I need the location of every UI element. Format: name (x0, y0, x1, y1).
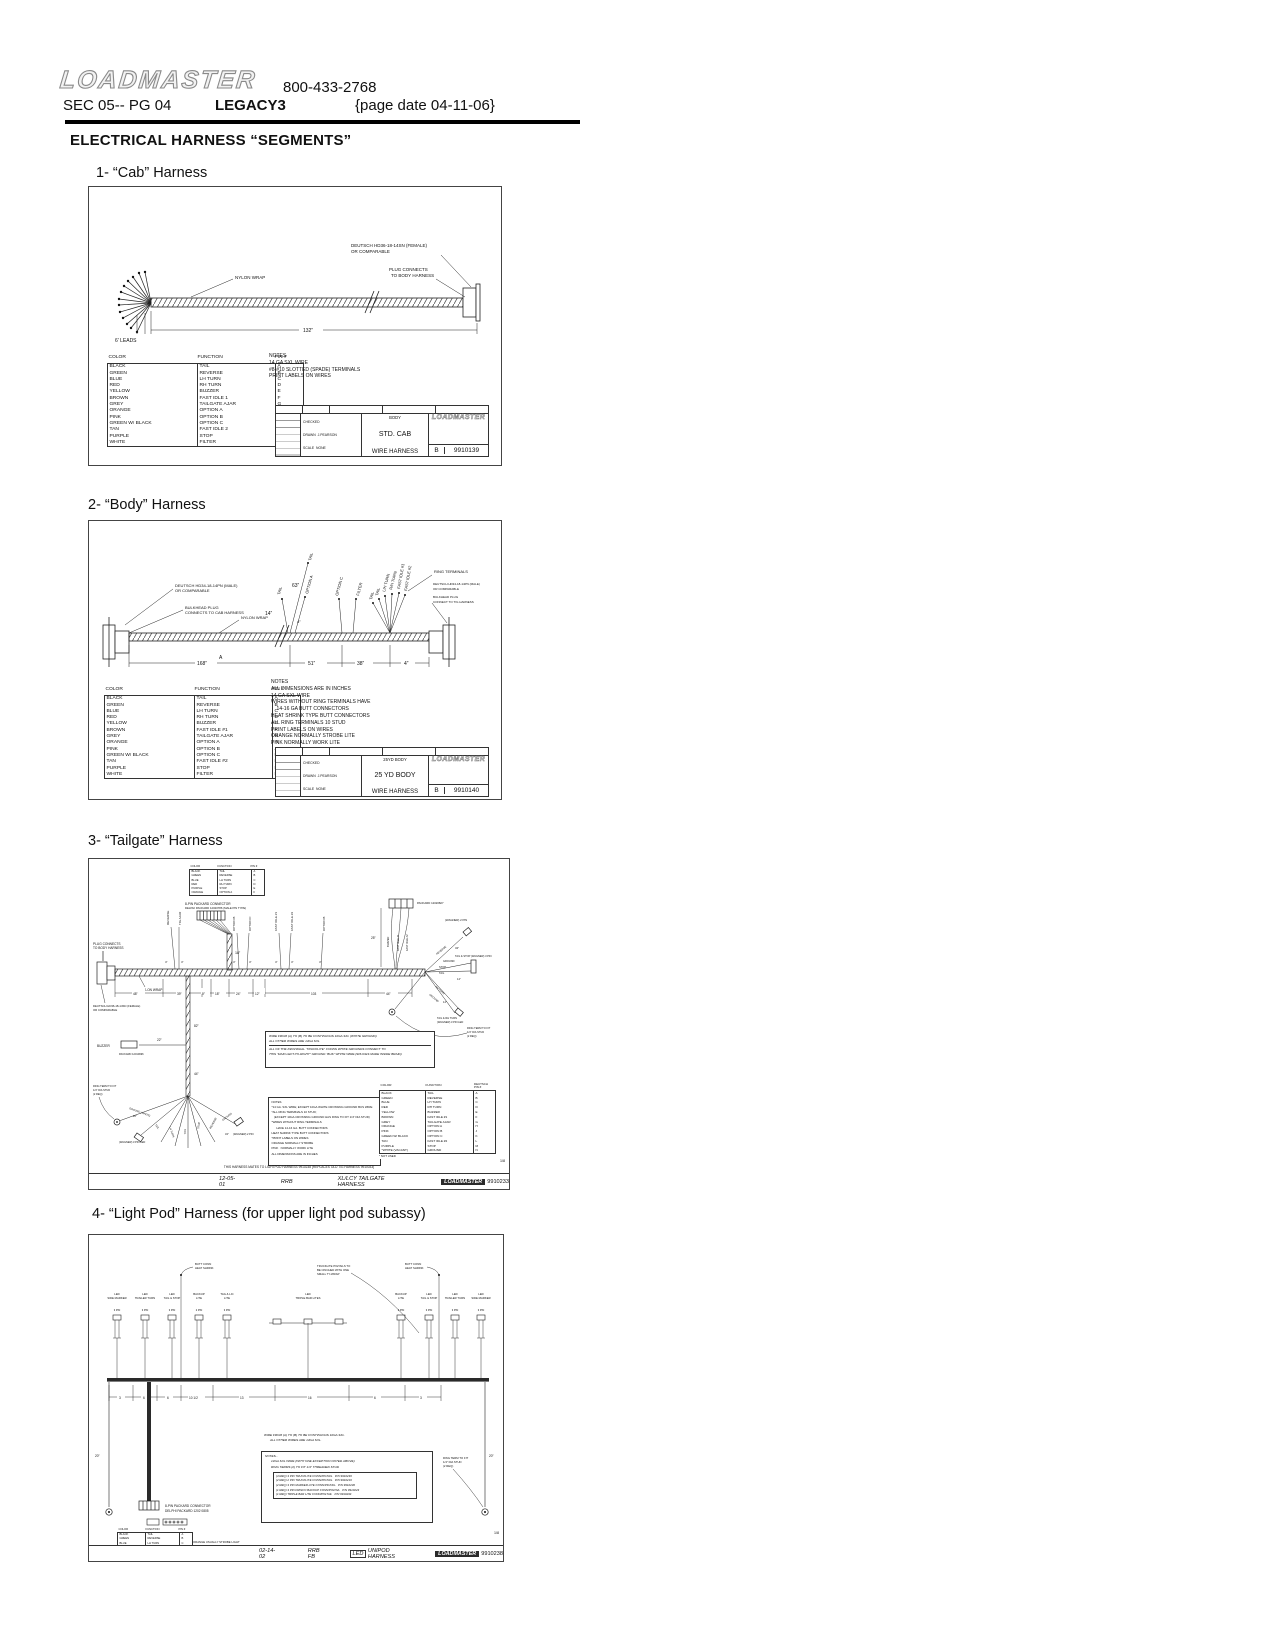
dim-9: 9” (202, 992, 205, 996)
drawing-title: STD. CAB (362, 431, 428, 438)
bulkhead-right-label2: CONNECT TO T/G HARNESS (433, 600, 474, 604)
dim-4: 4” (249, 960, 252, 964)
note-line: 14 GA SXL WIRE (269, 360, 360, 367)
dim: 3 (119, 1396, 121, 1400)
drawing-title: 25 YD BODY (362, 772, 428, 779)
dimension-chain (109, 1385, 441, 1401)
title-block-titles: BODY STD. CAB WIRE HARNESS (362, 414, 429, 456)
butt-conn-label2: HEAT SHRINK (195, 1266, 214, 1270)
dim-168: 168” (197, 661, 207, 667)
lightpod-notes: NOTES... 14GA SXL WIRE (WITH ONE EXCEPTI… (261, 1451, 433, 1523)
cab-lead-fan (119, 272, 151, 332)
note-line: PRINT LABELS ON WIRES (271, 727, 370, 734)
branch-label: FAST IDLE #2 (290, 912, 294, 931)
leader (99, 1097, 114, 1119)
dim-34: 34” (455, 946, 459, 950)
dim: 16 (308, 1396, 312, 1400)
body-notes: NOTES ALL DIMENSIONS ARE IN INCHES14 GA … (271, 679, 370, 747)
dim: 6 (167, 1396, 169, 1400)
cab-harness-drawing: NYLON WRAP DEUTSCH HD36-18-14SN (FEMALE)… (88, 186, 502, 466)
dim-34b: 34” (225, 1132, 229, 1136)
tag-3pin-led: (WAGNER) 3 PIN LED (437, 1020, 463, 1024)
dim-63: 63” (292, 583, 300, 589)
leader (351, 1273, 419, 1333)
drawing-number: 9910139 (445, 447, 488, 454)
brand-logo: LOADMASTER (429, 414, 488, 445)
tailgate-mini-table: COLOR FUNCTION PIN # BLACKTAILA GREENREV… (189, 865, 265, 896)
title-block-id: LOADMASTER B 9910140 (429, 756, 488, 796)
dim-20: 20” (133, 1114, 137, 1118)
fan2-label: TAIL (154, 1123, 161, 1130)
branch-label: OPTION B (322, 917, 326, 931)
mates-note: THIS HARNESS MATES TO LIGHTPOD HARNESS 9… (89, 1165, 509, 1169)
dim-132-label: 132” (303, 328, 313, 334)
lightpod-fixtures (113, 1315, 485, 1378)
leader (101, 985, 105, 1003)
title-block-signoff: CHECKED DRAWN J.PEARSON SCALE NONE (301, 756, 362, 796)
fixture-labels: LED SIDE MARKER 3 PIN LED TRAILER TURN 3… (107, 1292, 490, 1312)
bulkhead-right-label: BULKHEAD PLUG (433, 595, 459, 599)
parts-list-cells (276, 414, 301, 456)
side-dim-right: 20” (489, 1454, 494, 1458)
dim-25: 25” (371, 936, 376, 940)
fixture-tag: 3 PIN (114, 1308, 121, 1312)
strip-date: 02-14-02 (259, 1548, 278, 1560)
fixture-tag: 3 PIN (169, 1308, 176, 1312)
rbranch-label: FAST IDLE #2 (405, 934, 409, 951)
fan-label: REVERSE (435, 945, 447, 956)
side-dim-left: 20” (95, 1454, 100, 1458)
ring-term-note2: 1/4” DIA STUD (467, 1030, 484, 1034)
page-title: ELECTRICAL HARNESS “SEGMENTS” (70, 132, 351, 149)
mini-table-header: COLOR FUNCTION PIN # (117, 1528, 193, 1532)
not-used-footnote: * NOT USED (379, 1154, 496, 1159)
nylon-wrap-label: NYLON WRAP (241, 615, 268, 620)
plug-connects-label: PLUG CONNECTS (389, 267, 428, 272)
deutsch-right-label: DEUTSCH HD34-18-14PN (MALE) (433, 582, 480, 586)
dim-22: 22” (157, 1038, 162, 1042)
fan-label: TAIL (439, 971, 445, 975)
plug-connects-label2: TO BODY HARNESS (391, 273, 434, 278)
table-row: WHITEFILTERN (108, 440, 303, 446)
notes-list: NOTES*14 GA. SXL WIRE; EXCEPT 10GA WHITE… (272, 1100, 378, 1157)
tailgate-table-body: BLACKTAILA GREENREVERSEB BLUELH TURNC RE… (379, 1090, 496, 1154)
note-line: HEAT SHRINK TYPE BUTT CONNECTORS (271, 713, 370, 720)
dim-24: 24” (236, 992, 241, 996)
note-line: PRINT LABELS ON WIRES (269, 373, 360, 380)
gnote-line: THIS “MAIN LEFT-TO-RIGHT” GROUND “BUS” W… (269, 1052, 431, 1057)
dim: 6 (143, 1396, 145, 1400)
strip-author: RRB FB (308, 1548, 325, 1560)
fixture-label: TAIL & STOP (421, 1296, 438, 1300)
title-block-titles: 25YD BODY 25 YD BODY WIRE HARNESS (362, 756, 429, 796)
fixture-label: SIDE MARKER (107, 1296, 126, 1300)
fixture-label: LITE (224, 1296, 230, 1300)
note-line: #8-#10 SLOTTED (SPADE) TERMINALS (269, 367, 360, 374)
dim-103: 103 (311, 992, 317, 996)
strip-brand: LOADMASTER (441, 1179, 485, 1185)
note-line: ALL DIMENSIONS ARE IN INCHES (271, 686, 370, 693)
fixture-connectors (113, 1315, 485, 1320)
cab-heading: 1- “Cab” Harness (96, 165, 207, 181)
notes-list: ALL DIMENSIONS ARE IN INCHES14 GA SXL WI… (271, 686, 370, 747)
branch-label: FAST IDLE #1 (274, 912, 278, 931)
fixture-label: LITE (398, 1296, 404, 1300)
drawing-subtitle: WIRE HARNESS (362, 789, 428, 795)
note-line: PINK NORMALLY WORK LITE (271, 740, 370, 747)
strip-number: 9910238 (481, 1551, 503, 1557)
fixture-tag: 3 PIN (224, 1308, 231, 1312)
fixture-label: TRAILER TURN (445, 1296, 465, 1300)
packard-label: 8-PIN PACKARD CONNECTOR (165, 1504, 211, 1508)
phone-number: 800-433-2768 (283, 79, 376, 96)
buzzer-connector (121, 1041, 137, 1048)
rbranch-label: FAST IDLE #1 (396, 934, 400, 951)
riser-down (186, 976, 190, 1096)
revision-letter: B (429, 787, 445, 794)
strip-led-tag: LED (350, 1550, 366, 1558)
tailgate-harness-drawing: 8-PIN PACKARD CONNECTOR DELPHI PACKARD 1… (88, 858, 510, 1190)
dim-4b: 4” (404, 661, 409, 667)
title-block-signoff: CHECKED DRAWN J.PEARSON SCALE NONE (301, 414, 362, 456)
riser-18in (227, 934, 232, 970)
ring-term-note2: 1/4” DIA STUD (93, 1088, 110, 1092)
body-harness-drawing: TAIL 63” TAIL 14” OPTION A 4” OPTION C F… (88, 520, 502, 800)
cab-title-block: CHECKED DRAWN J.PEARSON SCALE NONE BODY … (275, 405, 489, 457)
notes-title: NOTES (271, 679, 370, 686)
branch-label: OPTION C (334, 576, 344, 596)
fan-connectors (455, 928, 476, 1017)
dim-48: 48” (133, 992, 138, 996)
dim: 10 1/2 (189, 1396, 198, 1400)
strip-date: 12-05-01 (219, 1176, 241, 1188)
dim-51: 51” (308, 661, 316, 667)
packard-right-label: PACKARD 12020827 (417, 901, 444, 905)
sheet-number: 1/8 (500, 1159, 505, 1163)
mini-table-header: COLOR FUNCTION PIN # (189, 865, 265, 869)
tailgate-left-connector (97, 951, 115, 984)
note-line: 14 GA SXL WIRE (271, 693, 370, 700)
packard-drop (147, 1382, 151, 1501)
tailgate-wire-table: COLOR FUNCTION DEUTSCHPIN # BLACKTAILA G… (379, 1083, 496, 1159)
dim: 6 (374, 1396, 376, 1400)
dim-44: 44” (386, 992, 391, 996)
packard-connector-label2: DELPHI PACKARD 12020786 (MALE PIN TYPE) (185, 906, 246, 910)
packard-right-connector (389, 899, 413, 908)
branch-label: T/G AJAR (178, 911, 182, 925)
tag-2pin: (WAGNER) 2 PIN (445, 918, 467, 922)
strip-number: 9910233 (487, 1179, 509, 1185)
deutsch-female-label2: OR COMPARABLE (93, 1008, 117, 1012)
brand-logo: LOADMASTER (429, 756, 488, 785)
tailgate-heading: 3- “Tailgate” Harness (88, 833, 223, 849)
ring-term-note3: (2 REQ) (93, 1092, 103, 1096)
tailgate-cable (115, 969, 425, 976)
fan-label: GROUND (428, 993, 439, 1004)
dim-4: 4” (275, 960, 278, 964)
ring-term-note: RING TERM TO FIT (93, 1084, 117, 1088)
table-row: *WHITE (VACANT)GROUNDN (380, 1148, 495, 1153)
mini-table-body: BLACKTAILA GREENREVERSEB BLUELH TURNC RE… (189, 869, 265, 896)
note-line: RING TERMS (2) TO FIT 1/4” THREADED STUD (265, 1465, 429, 1470)
ground-terminal-dot (391, 1011, 393, 1013)
ground-terminal-dot (484, 1511, 486, 1513)
bulkhead-plug-label2: CONNECTS TO CAB HARNESS (185, 610, 244, 615)
lightpod-bus (107, 1378, 489, 1382)
gnote-line: ALL OTHER WIRES ARE 14GA SXL (269, 1039, 431, 1044)
fixture-label: SIDE MARKER (471, 1296, 490, 1300)
fixture-label: TRAILER TURN (135, 1296, 155, 1300)
dim-44b: 44” (194, 1072, 199, 1076)
branch-label: REVERSE (166, 911, 170, 925)
drawing-subtitle: WIRE HARNESS (362, 449, 428, 455)
fixture-tag: 3 PIN (142, 1308, 149, 1312)
gnote-line: ALL OTHER WIRES ARE 14GA SXL. (264, 1438, 345, 1443)
body-left-connector (103, 617, 129, 667)
orange-strobe-note: ORANGE USUALLY STROBE LIGHT (193, 1540, 240, 1544)
nylon-wrap-label: NYLON WRAP (235, 275, 265, 280)
ring-term-note: RING TERM TO FIT (467, 1026, 491, 1030)
deutsch-connector-label2: OR COMPARABLE (351, 249, 390, 254)
strip-brand: LOADMASTER (435, 1551, 479, 1557)
branch-label: TAIL (276, 585, 283, 595)
deutsch-right-label2: OR COMPARABLE (433, 587, 459, 591)
note-line: ALL DIMENSIONS ARE IN INCHES (272, 1152, 378, 1157)
revision-letter: B (429, 447, 445, 454)
dim-14: 14” (457, 977, 461, 981)
parts-list-cells (276, 756, 301, 796)
fan2-label: REVERSE (208, 1116, 217, 1129)
drawing-number: 9910140 (445, 787, 488, 794)
notes-list: 14 GA SXL WIRE#8-#10 SLOTTED (SPADE) TER… (269, 360, 360, 380)
deutsch-male-label2: OR COMPARABLE (175, 588, 210, 593)
butt-conn-label2: HEAT SHRINK (405, 1266, 424, 1270)
rbranch-label: BUZZER (386, 936, 390, 947)
lightpod-harness-drawing: LED SIDE MARKER 3 PIN LED TRAILER TURN 3… (88, 1234, 504, 1562)
tailgate-table-header: COLOR FUNCTION DEUTSCHPIN # (379, 1083, 496, 1090)
tailgate-branch-wires (171, 927, 323, 969)
lightpod-ground-note: WIRE FROM (A) TO (B) TO BE CONTINUOUS 10… (264, 1433, 345, 1444)
branch-label: TAIL (307, 551, 314, 561)
dim-4: 4” (165, 960, 168, 964)
branch-label: OPTION C (248, 916, 252, 931)
strip-title: XL/LCY TAILGATE HARNESS (338, 1176, 412, 1188)
body-right-connector (429, 617, 455, 667)
buzzer-conn-label: PACKARD 12010996 (119, 1052, 144, 1056)
dim-4: 4” (319, 960, 322, 964)
dim: 13 (240, 1396, 244, 1400)
fixture-drop-wires (113, 1320, 485, 1378)
dim-4: 4” (233, 960, 236, 964)
leader (453, 1469, 483, 1507)
branch-label: OPTION B (232, 917, 236, 931)
title-block-header-strip (276, 748, 488, 756)
mini-connector-graphics (147, 1519, 187, 1525)
fan2-label: TAIL (183, 1129, 187, 1135)
dimension-chain (129, 645, 429, 667)
dim-38: 38” (357, 661, 365, 667)
fixture-label: TAIL & STOP (164, 1296, 181, 1300)
packard-right-wires (381, 908, 409, 969)
body-heading: 2- “Body” Harness (88, 497, 206, 513)
lightpod-title-strip: 02-14-02 RRB FB LED UNIPOD HARNESS LOADM… (89, 1545, 503, 1561)
fixture-tag: 3 PIN (452, 1308, 459, 1312)
sheet-number: 1/8 (494, 1531, 499, 1535)
triple-bar-lites (269, 1319, 347, 1378)
bottom-fan-connectors (134, 1117, 243, 1141)
body-title-block: CHECKED DRAWN J.PEARSON SCALE NONE 25YD … (275, 747, 489, 797)
packard-8pin-connector (197, 911, 225, 920)
next-assy: BODY (362, 415, 428, 420)
tag-2pin: (WAGNER) 2 PIN (233, 1132, 254, 1136)
note-line: ALL RING TERMINALS 10 STUD (271, 720, 370, 727)
packard-fan-wires (200, 920, 232, 934)
note-line: 14-16 GA BUTT CONNECTORS (271, 706, 370, 713)
leader (139, 976, 145, 987)
leads-label: 6' LEADS (115, 338, 137, 344)
branch-label: FILTER (355, 582, 363, 596)
manual-page: LOADMASTER 800-433-2768 SEC 05-- PG 04 L… (0, 0, 1275, 1650)
title-block-header-strip (276, 406, 488, 414)
strip-title: UNIPOD HARNESS (368, 1548, 410, 1560)
dim-82: 82” (194, 1024, 199, 1028)
fixture-tag: 3 PIN (426, 1308, 433, 1312)
part-line: (1 REQ) TRIPLE BAR LITE CONN/PIGTAIL P/N… (276, 1492, 414, 1497)
tailgate-title-strip: 12-05-01 RRB XL/LCY TAILGATE HARNESS LOA… (89, 1173, 509, 1189)
ring-term-note3: (2 REQ) (443, 1464, 453, 1468)
table-row: ORANGEOPTION AF (190, 891, 264, 895)
lightpod-heading: 4- “Light Pod” Harness (for upper light … (92, 1206, 426, 1222)
ground-bus-note: WIRE FROM (A) TO (B) TO BE CONTINUOUS 10… (265, 1031, 435, 1068)
dim: 3 (420, 1396, 422, 1400)
ring-term-note3: (2 REQ) (467, 1034, 477, 1038)
fixture-tag: 3 PIN (478, 1308, 485, 1312)
parts-list: (4 REQ) 3 PIN TRUCKLITE CONN/PIGTAIL P/N… (273, 1472, 417, 1499)
packard-label2: DELPHI PACKARD 1202 0805 (165, 1509, 209, 1513)
header-rule (65, 120, 580, 124)
cab-connector (463, 284, 480, 321)
branch-label: OPTION A (304, 574, 314, 594)
fixture-tag: 2 PIN (196, 1308, 203, 1312)
dim-18b: 18” (215, 992, 220, 996)
tailgate-notes: NOTES*14 GA. SXL WIRE; EXCEPT 10GA WHITE… (268, 1097, 381, 1166)
fan-label: STOP (439, 965, 446, 969)
title-block-id: LOADMASTER B 9910139 (429, 414, 488, 456)
notes-title: NOTES (269, 353, 360, 360)
fixture-label: LITE (196, 1296, 202, 1300)
strip-author: RRB (281, 1179, 293, 1185)
dim-14: 14” (443, 1000, 447, 1004)
note-line: WIRES WITHOUT RING TERMINALS HAVE (271, 699, 370, 706)
model-name: LEGACY3 (215, 97, 286, 114)
page-date: {page date 04-11-06} (355, 97, 495, 114)
table-row: WHITEFILTERN (105, 772, 300, 778)
fan2-label: LH TURN (168, 1126, 176, 1138)
dim-4: 4” (291, 960, 294, 964)
dim-4: 4” (297, 619, 301, 624)
dim-12: 12” (255, 992, 260, 996)
deutsch-connector-label: DEUTSCH HD36-18-14SN (FEMALE) (351, 243, 428, 248)
trucklite-note3: SMALL TY-WRAP (317, 1272, 340, 1276)
note-line: ORANGE NORMALLY STROBE LITE (271, 733, 370, 740)
fan2-label: STOP (196, 1121, 201, 1129)
tag-3pin-led: (WAGNER) 3 PIN LED (119, 1140, 145, 1144)
packard-connector (139, 1501, 159, 1510)
cab-cable (151, 298, 463, 307)
fixture-label: TRIPLE BAR LITES (296, 1296, 321, 1300)
section-page-ref: SEC 05-- PG 04 (63, 97, 171, 114)
fan-label: RH TURN (434, 985, 446, 996)
ring-terminals-label: RING TERMINALS (434, 569, 468, 574)
loadmaster-logo: LOADMASTER (58, 66, 257, 95)
next-assy: 25YD BODY (362, 757, 428, 762)
dim-4: 4” (181, 960, 184, 964)
cab-notes: NOTES 14 GA SXL WIRE#8-#10 SLOTTED (SPAD… (269, 353, 360, 380)
tag-3pin: TAIL & STOP (WAGNER) 3 PIN (455, 954, 492, 958)
dim-39: 39” (177, 992, 182, 996)
fan-label: GROUND (443, 959, 455, 963)
plug-connects-label2: TO BODY HARNESS (93, 946, 124, 950)
buzzer-label: BUZZER (97, 1044, 110, 1048)
tag-rh: TAIL & RH TURN (437, 1016, 457, 1020)
ground-terminal-dot (108, 1511, 110, 1513)
dim-ref-a: A (219, 655, 223, 661)
ground-terminal-dot (116, 1121, 118, 1123)
